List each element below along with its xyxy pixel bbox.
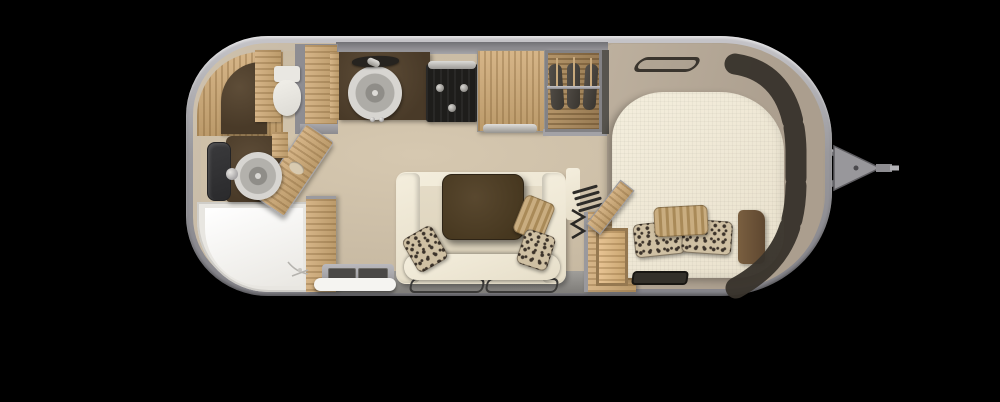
folding-table-outline [484,278,559,293]
bathroom-sink [234,152,282,200]
burner-knob [448,104,456,112]
bed-tray [631,271,689,285]
hanger [573,57,575,87]
entry-step-rim [314,278,396,291]
dinette-table [442,174,524,240]
folding-table-outline [408,278,485,293]
burner-knob [436,84,444,92]
hanger [556,58,558,88]
wardrobe-side-wall [602,50,609,134]
storage-box-interior [596,228,628,286]
bathroom-faucet [226,168,238,180]
oven-handle [428,61,476,69]
sink-drain-dot [255,173,261,179]
toilet [273,80,301,116]
hanger-rod [547,86,600,89]
refrigerator [477,50,545,132]
vanity-side [272,132,288,158]
bed-pillow-striped [653,205,708,238]
drawer-knob [379,117,384,122]
door-inset [287,159,306,177]
drawer-knob [370,117,375,122]
kitchen-sink [348,66,402,120]
sink-drain-dot [372,90,378,96]
burner-knob [460,84,468,92]
hanger [590,58,592,88]
trailer-floorplan [0,0,1000,402]
kitchen-counter-edge [330,52,339,120]
corner-cabinet [738,210,765,264]
cooktop [426,64,478,122]
refrigerator-handle [483,124,537,133]
